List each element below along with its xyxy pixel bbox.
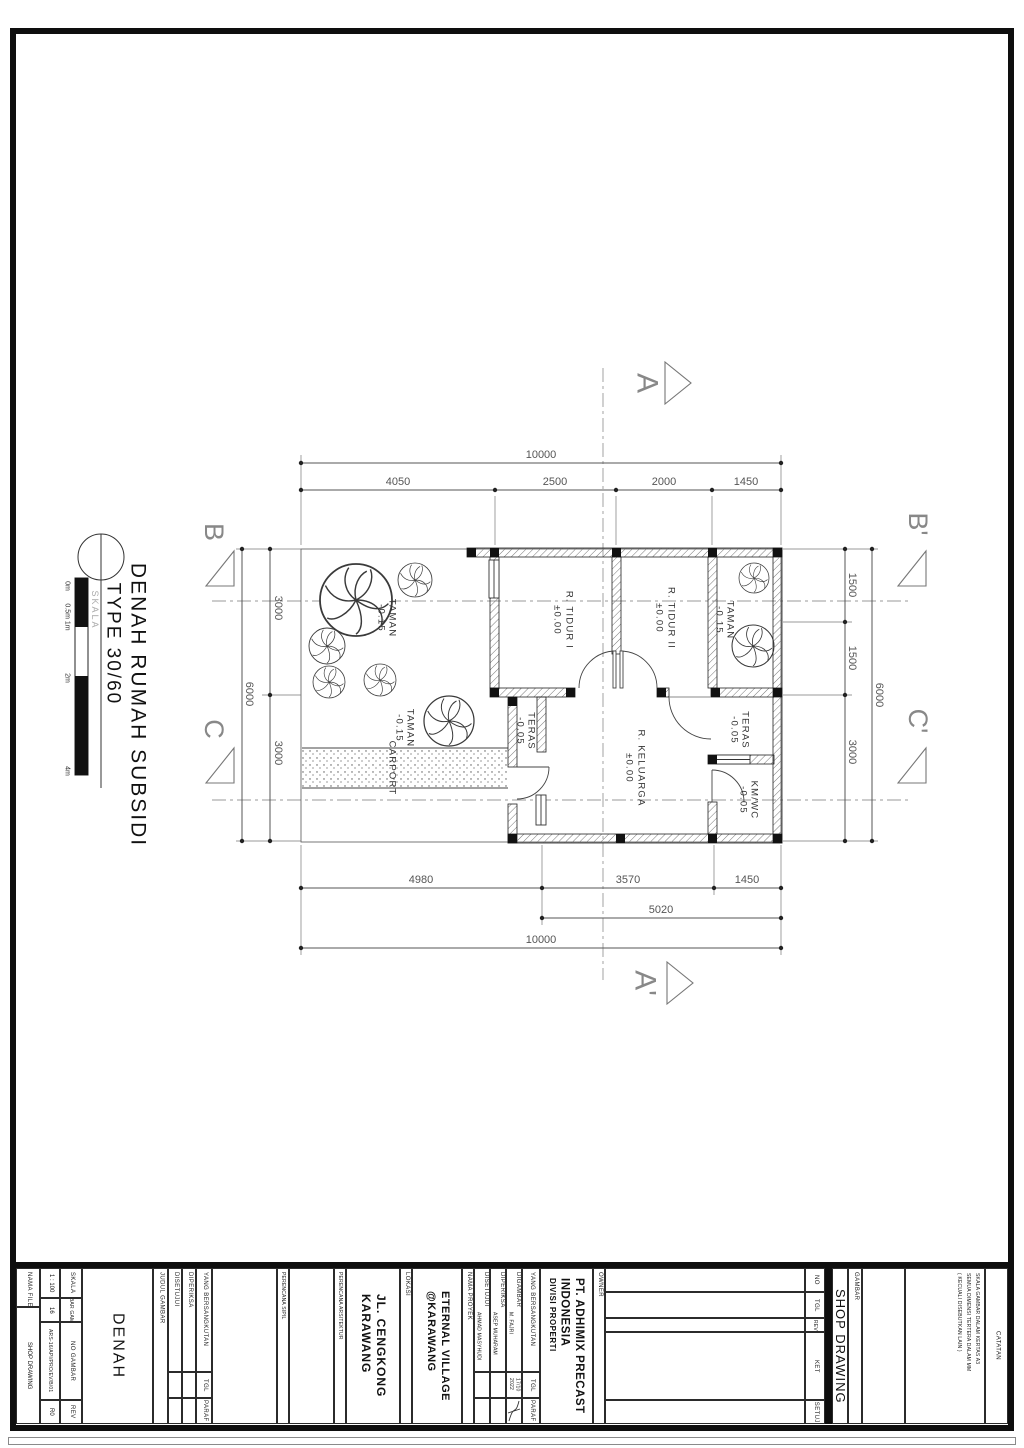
skala-header: SKALA bbox=[60, 1268, 82, 1298]
disetujui-name-col: DISETUJUIAHMAD MASYHUDI bbox=[474, 1268, 490, 1372]
svg-text:-0.05: -0.05 bbox=[515, 717, 526, 745]
perencana-sipil-box bbox=[289, 1268, 334, 1424]
signature-box bbox=[212, 1268, 277, 1424]
room-label-taman-right: TAMAN bbox=[725, 601, 736, 640]
section-label-a: A bbox=[631, 373, 664, 393]
svg-text:1500: 1500 bbox=[846, 646, 858, 670]
room-label-teras-left: TERAS bbox=[526, 712, 537, 750]
disetujui-col-left: DISETUJUI bbox=[168, 1268, 182, 1372]
rev-rev-header: REV bbox=[805, 1318, 825, 1332]
drawing-sheet: DENAH RUMAH SUBSIDI TYPE 30/60 0m 0.5m 1… bbox=[0, 0, 1024, 1448]
svg-text:1500: 1500 bbox=[846, 573, 858, 597]
room-label-tidur2: R. TIDUR II bbox=[666, 587, 677, 649]
svg-text:4050: 4050 bbox=[386, 476, 410, 488]
section-arrow-b bbox=[206, 551, 234, 586]
svg-text:1450: 1450 bbox=[735, 874, 759, 886]
paraf-header-left: PARAF bbox=[196, 1398, 212, 1424]
svg-text:±0.00: ±0.00 bbox=[552, 605, 563, 635]
rev-disetujui-header: DISETUJUI bbox=[805, 1400, 825, 1424]
section-arrow-c bbox=[206, 748, 234, 783]
svg-text:2500: 2500 bbox=[543, 476, 567, 488]
catatan-header: CATATAN bbox=[985, 1268, 1008, 1424]
judul-value: DENAH bbox=[82, 1268, 153, 1424]
section-label-c2: C' bbox=[903, 709, 933, 734]
svg-text:4980: 4980 bbox=[409, 874, 433, 886]
dimension-text: 10000 4050 2500 2000 1450 4980 3570 1450… bbox=[243, 449, 885, 946]
svg-text:0.5m 1m: 0.5m 1m bbox=[64, 603, 71, 630]
section-markers: A A' B C B' C' bbox=[199, 362, 933, 1004]
svg-text:0m: 0m bbox=[64, 581, 71, 591]
perencana-arsitektur-header: PERENCANA ARSITEKTUR bbox=[334, 1268, 346, 1424]
tgl-header-right: TGL bbox=[522, 1372, 540, 1398]
svg-text:-0.05: -0.05 bbox=[738, 786, 749, 814]
no-gambar-value: ARS-16/API/PRO/EV/B/01 bbox=[40, 1322, 60, 1400]
skala-value: 1 : 100 bbox=[40, 1268, 60, 1298]
gambar-value: SHOP DRAWING bbox=[832, 1268, 848, 1424]
svg-text:6000: 6000 bbox=[243, 682, 255, 706]
titleblock-thick-divider bbox=[825, 1268, 832, 1424]
diperiksa-col-left: DIPERIKSA bbox=[182, 1268, 196, 1372]
section-arrow-b2 bbox=[898, 551, 926, 586]
tgl-value: 17/102022 bbox=[506, 1372, 522, 1398]
sheet-edge-strip bbox=[8, 1437, 1016, 1445]
lokasi-header: LOKASI bbox=[400, 1268, 412, 1424]
svg-text:4m: 4m bbox=[64, 766, 71, 776]
rev-tgl-header: TGL bbox=[805, 1292, 825, 1318]
proyek-value: ETERNAL VILLAGE@KARAWANG bbox=[412, 1268, 462, 1424]
room-label-kmwc: KM/WC bbox=[749, 781, 760, 820]
svg-text:3000: 3000 bbox=[846, 740, 858, 764]
title-block: NAMA FILE SHOP DRAWING 1 : 100 16 ARS-16… bbox=[16, 1268, 1008, 1424]
section-label-a2: A' bbox=[629, 970, 662, 996]
svg-text:2000: 2000 bbox=[652, 476, 676, 488]
paraf-signature bbox=[506, 1398, 522, 1424]
svg-text:-0.05: -0.05 bbox=[729, 716, 740, 744]
owner-value: PT. ADHIMIX PRECASTINDONESIADIVISI PROPE… bbox=[540, 1268, 593, 1424]
svg-text:3000: 3000 bbox=[272, 596, 284, 620]
svg-text:5020: 5020 bbox=[649, 904, 673, 916]
svg-text:-0.15: -0.15 bbox=[376, 604, 387, 632]
room-label-keluarga: R. KELUARGA bbox=[636, 729, 647, 806]
page-title: DENAH RUMAH SUBSIDI bbox=[127, 563, 150, 847]
room-label-taman-left: TAMAN bbox=[387, 599, 398, 638]
nama-file-header: NAMA FILE bbox=[16, 1268, 40, 1307]
signature-icon bbox=[507, 1399, 521, 1423]
svg-text:2m: 2m bbox=[64, 673, 71, 683]
rev-header: REV bbox=[60, 1400, 82, 1424]
rev-value: R0 bbox=[40, 1400, 60, 1424]
owner-header: OWNER bbox=[593, 1268, 605, 1424]
digambar-name-col: DIGAMBARM. FAJRI bbox=[506, 1268, 522, 1372]
ybs-header-left: YANG BERSANGKUTAN bbox=[196, 1268, 212, 1372]
section-label-b2: B' bbox=[903, 512, 933, 535]
lokasi-value: JL. CENGKONGKARAWANG bbox=[346, 1268, 400, 1424]
svg-text:1450: 1450 bbox=[734, 476, 758, 488]
drawing-title: DENAH RUMAH SUBSIDI TYPE 30/60 bbox=[78, 534, 150, 847]
room-label-teras-right: TERAS bbox=[740, 711, 751, 749]
svg-text:±0.00: ±0.00 bbox=[654, 603, 665, 633]
nama-file-value: SHOP DRAWING bbox=[16, 1307, 40, 1424]
section-arrow-a bbox=[665, 362, 691, 404]
scale-bar: 0m 0.5m 1m 2m 4m SKALA bbox=[64, 578, 101, 776]
ybs-header-right: YANG BERSANGKUTAN bbox=[522, 1268, 540, 1372]
svg-text:±0.00: ±0.00 bbox=[624, 753, 635, 783]
catatan-notes: SKALA GAMBAR DALAM KERTAS A3 SEMUA DIMEN… bbox=[905, 1268, 985, 1424]
carport-paving bbox=[302, 748, 508, 788]
gambar-header: GAMBAR bbox=[848, 1268, 862, 1424]
tgl-header-left: TGL bbox=[196, 1372, 212, 1398]
page-subtitle: TYPE 30/60 bbox=[103, 583, 124, 705]
floor-plan-drawing: DENAH RUMAH SUBSIDI TYPE 30/60 0m 0.5m 1… bbox=[0, 0, 1024, 1262]
diperiksa-name-col: DIPERIKSAASEP MUHARAM bbox=[490, 1268, 506, 1372]
svg-text:10000: 10000 bbox=[526, 934, 557, 946]
svg-text:3000: 3000 bbox=[272, 741, 284, 765]
skala-caption: SKALA bbox=[90, 590, 100, 629]
room-label-taman-mid: TAMAN bbox=[405, 709, 416, 748]
proyek-header: NAMA PROYEK bbox=[462, 1268, 474, 1424]
room-label-carport: CARPORT bbox=[387, 741, 398, 796]
svg-text:-0.15: -0.15 bbox=[394, 714, 405, 742]
perencana-sipil-header: PERENCANA SIPIL bbox=[277, 1268, 289, 1424]
judul-header: JUDUL GAMBAR bbox=[153, 1268, 168, 1424]
lembar-header: LEMBAR GAMBAR bbox=[60, 1298, 82, 1322]
section-arrow-a2 bbox=[667, 962, 693, 1004]
paraf-header-right: PARAF bbox=[522, 1398, 540, 1424]
svg-text:3570: 3570 bbox=[616, 874, 640, 886]
rev-no-header: NO bbox=[805, 1268, 825, 1292]
lembar-value: 16 bbox=[40, 1298, 60, 1322]
svg-text:6000: 6000 bbox=[873, 683, 885, 707]
section-label-b: B bbox=[199, 523, 229, 541]
section-label-c: C bbox=[199, 719, 229, 739]
section-arrow-c2 bbox=[898, 748, 926, 783]
walls bbox=[467, 548, 782, 843]
svg-text:-0.15: -0.15 bbox=[714, 606, 725, 634]
no-gambar-header: NO GAMBAR bbox=[60, 1322, 82, 1400]
rev-ket-header: KET bbox=[805, 1332, 825, 1400]
svg-text:10000: 10000 bbox=[526, 449, 557, 461]
room-label-tidur1: R. TIDUR I bbox=[564, 591, 575, 649]
